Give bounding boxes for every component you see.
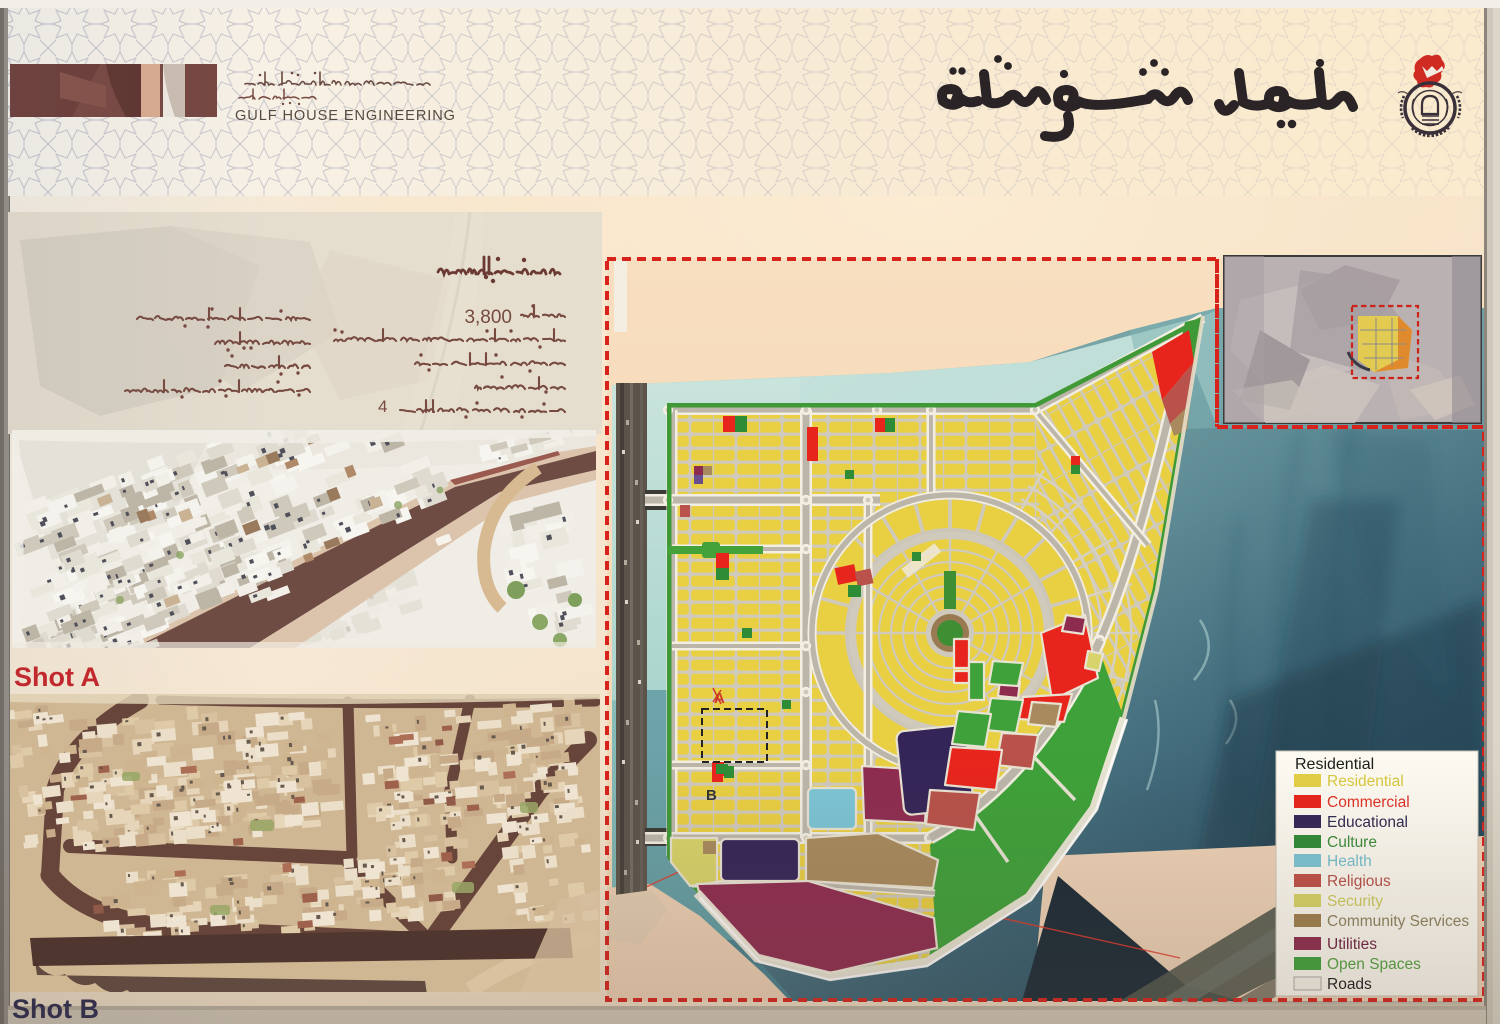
svg-text:Shot A: Shot A: [14, 662, 100, 692]
svg-text:Shot B: Shot B: [12, 994, 99, 1024]
